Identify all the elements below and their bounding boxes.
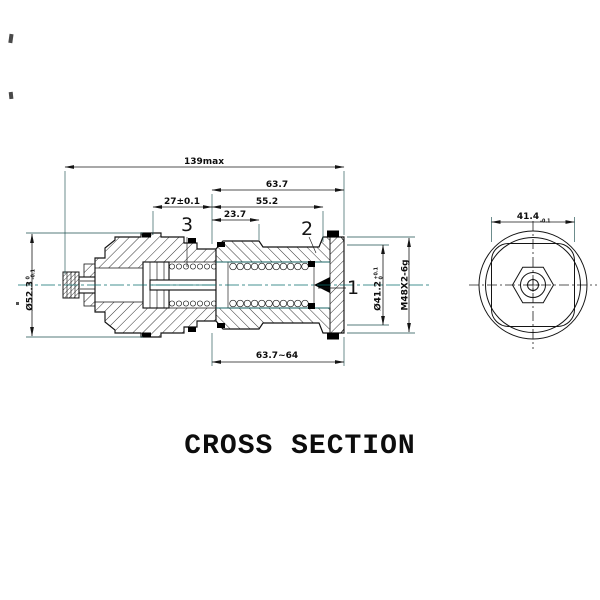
cross-section-drawing: 139max 63.7 27±0.1 55.2 23.7 63.7~64 Ø52… — [0, 0, 600, 600]
dim-63-7-text: 63.7 — [266, 180, 288, 190]
dim-139max: 139max — [65, 157, 344, 167]
dim-thread: M48X2-6g — [401, 238, 411, 332]
callout-2: 2 — [301, 218, 313, 240]
callout-1: 1 — [347, 277, 359, 299]
dim-139max-text: 139max — [184, 157, 224, 167]
dim-41-4-text: 41.4 — [517, 212, 539, 222]
drawing-sheet: 139max 63.7 27±0.1 55.2 23.7 63.7~64 Ø52… — [0, 0, 600, 600]
dim-dia-41-2-text: Ø41.2 — [373, 281, 384, 311]
dim-55-2: 55.2 — [212, 197, 323, 207]
dia-52-3-tol-bot: -0.1 — [31, 269, 37, 280]
dim-63-7-64: 63.7~64 — [212, 351, 344, 362]
dim-23-7: 23.7 — [212, 210, 259, 220]
dim-55-2-text: 55.2 — [256, 197, 278, 207]
dim-63-7-64-text: 63.7~64 — [256, 351, 298, 361]
dim-dia-52-3: Ø52.3 0 -0.1 — [25, 234, 37, 336]
scan-artifacts — [8, 34, 19, 305]
dim-63-7: 63.7 — [212, 180, 344, 190]
dim-23-7-text: 23.7 — [224, 210, 246, 220]
main-view — [18, 231, 432, 340]
callout-3: 3 — [181, 214, 193, 236]
drawing-title: CROSS SECTION — [184, 431, 415, 462]
end-view: 41.4 -0.1 — [469, 212, 597, 349]
dim-dia-52-3-text: Ø52.3 — [25, 281, 36, 311]
dim-27-text: 27±0.1 — [164, 197, 200, 207]
dim-27: 27±0.1 — [153, 197, 212, 207]
dim-thread-text: M48X2-6g — [401, 259, 411, 310]
dim-41-4-tol: -0.1 — [540, 219, 551, 225]
dim-dia-41-2: Ø41.2 +0.1 0 — [373, 245, 385, 325]
